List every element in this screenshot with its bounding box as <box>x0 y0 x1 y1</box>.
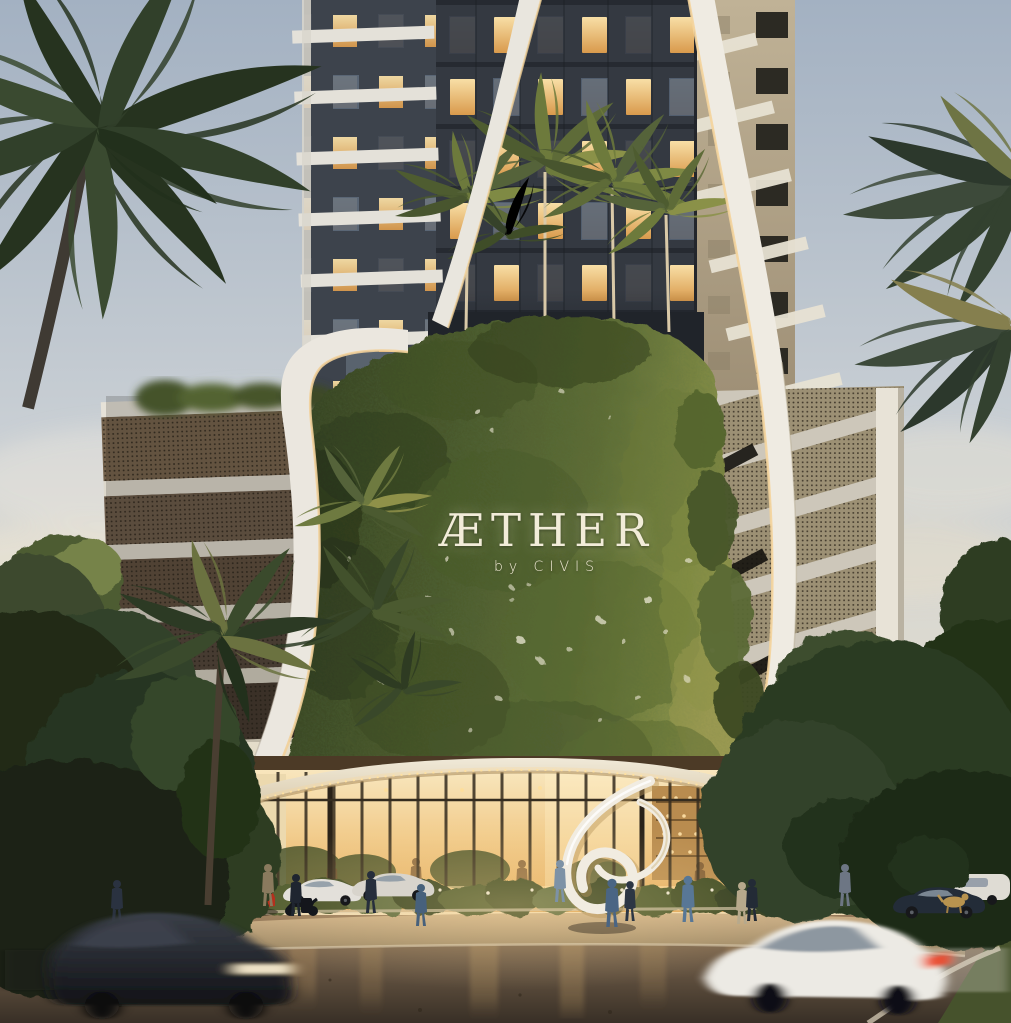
palm-top-left <box>0 0 329 408</box>
scene-root: ÆTHER by CIVIS <box>0 0 1011 1023</box>
tree-overlap <box>890 836 970 896</box>
scene-render <box>0 0 1011 1023</box>
